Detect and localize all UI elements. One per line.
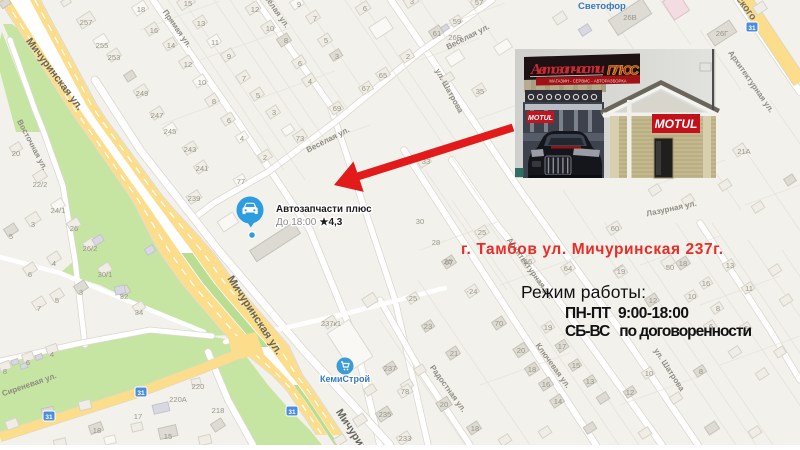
svg-text:14: 14: [554, 397, 562, 406]
svg-text:26В: 26В: [623, 13, 637, 22]
svg-text:61: 61: [433, 29, 441, 38]
svg-text:6: 6: [298, 59, 302, 68]
svg-text:4: 4: [308, 77, 312, 86]
svg-text:-24: -24: [467, 287, 478, 296]
svg-text:17: 17: [558, 342, 566, 351]
svg-text:8: 8: [716, 304, 720, 313]
svg-text:2: 2: [263, 153, 267, 162]
svg-text:15: 15: [572, 361, 580, 370]
svg-text:6: 6: [227, 116, 231, 125]
svg-text:67: 67: [362, 84, 370, 93]
svg-text:253: 253: [108, 53, 121, 62]
svg-text:18: 18: [471, 424, 479, 433]
svg-text:До 18:00: До 18:00: [276, 217, 317, 228]
svg-text:26Г: 26Г: [716, 29, 729, 38]
svg-text:12: 12: [251, 5, 259, 14]
svg-text:3: 3: [79, 288, 83, 297]
svg-text:24/1: 24/1: [51, 206, 66, 215]
svg-text:69: 69: [333, 104, 341, 113]
svg-text:6: 6: [28, 270, 32, 279]
svg-text:5: 5: [324, 36, 328, 45]
svg-text:22/2: 22/2: [33, 180, 48, 189]
svg-text:9: 9: [297, 0, 301, 9]
svg-text:31: 31: [45, 414, 53, 421]
svg-text:19: 19: [617, 267, 625, 276]
svg-text:20: 20: [440, 400, 448, 409]
svg-text:3: 3: [31, 220, 35, 229]
svg-text:15: 15: [184, 0, 192, 8]
svg-text:20: 20: [517, 346, 525, 355]
svg-text:10: 10: [198, 78, 206, 87]
svg-text:12: 12: [626, 388, 634, 397]
svg-text:18: 18: [528, 365, 536, 374]
svg-text:70: 70: [495, 319, 503, 328]
svg-text:21: 21: [450, 349, 458, 358]
svg-text:18: 18: [679, 259, 687, 268]
svg-text:11: 11: [745, 284, 753, 293]
svg-text:8: 8: [699, 367, 703, 376]
svg-text:2: 2: [406, 52, 410, 61]
svg-text:★4,3: ★4,3: [320, 217, 343, 228]
svg-text:12: 12: [649, 296, 657, 305]
svg-text:10: 10: [266, 24, 274, 33]
svg-text:60: 60: [611, 224, 619, 233]
svg-text:5: 5: [256, 91, 260, 100]
svg-text:5: 5: [9, 232, 13, 241]
svg-text:34: 34: [135, 308, 143, 317]
svg-text:MOTUL: MOTUL: [528, 115, 553, 122]
svg-text:18: 18: [137, 5, 145, 14]
svg-text:31: 31: [288, 409, 296, 416]
svg-text:245: 245: [164, 127, 177, 136]
svg-text:59: 59: [453, 17, 461, 26]
svg-text:31: 31: [748, 25, 756, 32]
svg-text:247: 247: [151, 111, 164, 120]
svg-text:13: 13: [586, 377, 594, 386]
svg-text:249: 249: [136, 89, 149, 98]
svg-text:77: 77: [237, 177, 245, 186]
svg-text:7: 7: [313, 14, 317, 23]
svg-text:4: 4: [50, 350, 54, 359]
svg-text:243: 243: [184, 145, 197, 154]
svg-text:257: 257: [80, 18, 93, 27]
svg-text:26: 26: [70, 224, 78, 233]
svg-text:4: 4: [240, 134, 244, 143]
svg-text:6: 6: [26, 358, 30, 367]
svg-text:7: 7: [242, 74, 246, 83]
svg-text:СБ-ВС по договоренности: СБ-ВС по договоренности: [565, 323, 752, 340]
svg-text:220: 220: [192, 382, 205, 391]
svg-text:31: 31: [137, 390, 145, 397]
svg-text:16: 16: [150, 26, 158, 35]
svg-text:220А: 220А: [169, 395, 188, 404]
svg-text:9: 9: [227, 52, 231, 61]
svg-text:г. Тамбов ул. Мичуринская 237г: г. Тамбов ул. Мичуринская 237г.: [461, 241, 723, 258]
svg-text:30/1: 30/1: [98, 270, 113, 279]
svg-text:8: 8: [284, 36, 288, 45]
svg-text:3: 3: [410, 0, 414, 6]
svg-text:ПН-ПТ 9:00-18:00: ПН-ПТ 9:00-18:00: [565, 305, 689, 322]
svg-text:57: 57: [475, 0, 483, 7]
svg-text:23: 23: [424, 322, 432, 331]
svg-text:МАГАЗИН - СЕРВИС - АВТОРАЗБОРК: МАГАЗИН - СЕРВИС - АВТОРАЗБОРКА: [549, 79, 626, 84]
svg-text:5: 5: [55, 296, 59, 305]
svg-text:7: 7: [37, 304, 41, 313]
svg-text:78: 78: [401, 387, 409, 396]
svg-text:8: 8: [3, 367, 7, 376]
svg-text:3: 3: [272, 108, 276, 117]
svg-text:25: 25: [478, 228, 486, 237]
svg-text:30: 30: [416, 217, 424, 226]
svg-text:73: 73: [296, 134, 304, 143]
svg-text:233: 233: [399, 434, 412, 443]
svg-text:237: 237: [384, 364, 397, 373]
svg-text:32: 32: [120, 292, 128, 301]
svg-text:КемиСтрой: КемиСтрой: [320, 374, 370, 384]
svg-text:255: 255: [96, 41, 109, 50]
svg-text:11: 11: [211, 38, 219, 47]
svg-text:6: 6: [363, 4, 367, 13]
svg-text:241: 241: [196, 164, 209, 173]
svg-text:Режим работы:: Режим работы:: [521, 282, 646, 302]
svg-text:13: 13: [197, 19, 205, 28]
svg-text:21А: 21А: [737, 147, 751, 156]
svg-text:16: 16: [542, 380, 550, 389]
svg-text:15: 15: [164, 432, 172, 441]
svg-text:235: 235: [379, 410, 392, 419]
svg-text:237к1: 237к1: [321, 319, 341, 328]
svg-text:25: 25: [409, 294, 417, 303]
svg-text:16: 16: [702, 279, 710, 288]
svg-text:26: 26: [444, 257, 452, 266]
svg-text:19: 19: [544, 323, 552, 332]
svg-text:26/2: 26/2: [83, 244, 98, 253]
svg-text:17: 17: [134, 412, 142, 421]
svg-text:14: 14: [167, 41, 175, 50]
svg-text:20: 20: [12, 149, 20, 158]
svg-text:Светофор: Светофор: [578, 1, 626, 12]
svg-text:50: 50: [666, 263, 674, 272]
svg-text:218: 218: [212, 406, 225, 415]
svg-text:10: 10: [645, 369, 653, 378]
svg-text:18: 18: [93, 426, 101, 435]
svg-text:35: 35: [476, 87, 484, 96]
svg-text:10: 10: [688, 292, 696, 301]
svg-text:28: 28: [432, 238, 440, 247]
svg-text:4: 4: [52, 259, 56, 268]
svg-text:Автозапчасти плюс: Автозапчасти плюс: [276, 204, 372, 215]
svg-text:3: 3: [335, 52, 339, 61]
svg-text:12: 12: [184, 60, 192, 69]
svg-text:64: 64: [564, 264, 572, 273]
svg-text:8: 8: [212, 97, 216, 106]
svg-text:13: 13: [726, 261, 734, 270]
svg-text:239: 239: [188, 194, 201, 203]
svg-text:65: 65: [379, 71, 387, 80]
svg-text:MOTUL: MOTUL: [655, 117, 698, 131]
